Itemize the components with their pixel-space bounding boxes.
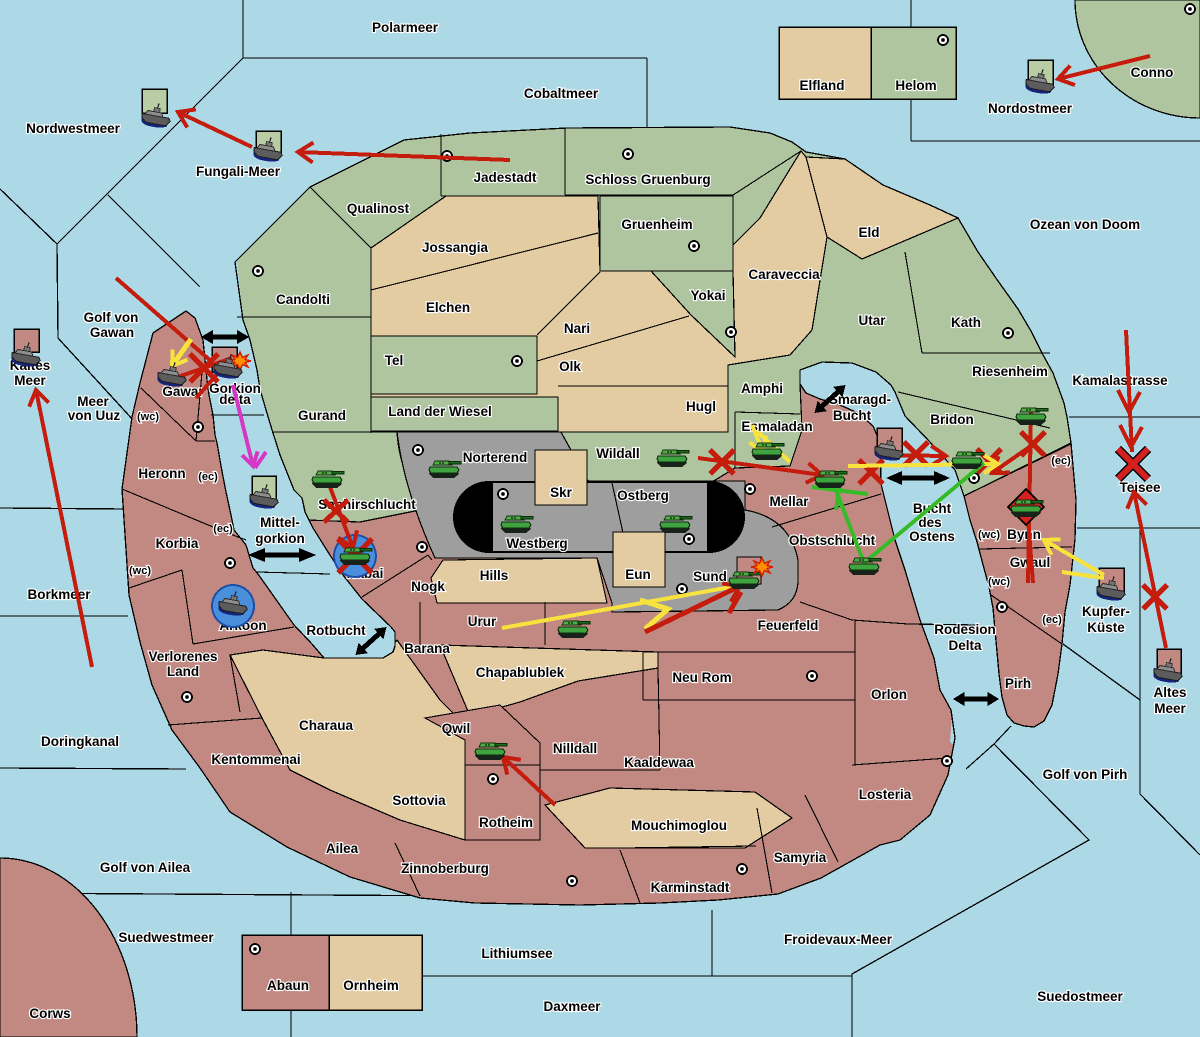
svg-text:Fungali-Meer: Fungali-Meer bbox=[196, 164, 281, 179]
svg-text:Ostens: Ostens bbox=[909, 529, 955, 544]
svg-text:Nari: Nari bbox=[564, 321, 590, 336]
svg-text:Chapablublek: Chapablublek bbox=[476, 665, 565, 680]
svg-text:Bynn: Bynn bbox=[1007, 527, 1041, 542]
svg-text:Qualinost: Qualinost bbox=[347, 201, 410, 216]
svg-text:Caraveccia: Caraveccia bbox=[748, 267, 820, 282]
svg-text:Lithiumsee: Lithiumsee bbox=[481, 946, 553, 961]
svg-text:Teisee: Teisee bbox=[1119, 480, 1161, 495]
svg-text:Meer: Meer bbox=[14, 373, 46, 388]
svg-text:Cobaltmeer: Cobaltmeer bbox=[524, 86, 599, 101]
svg-text:(wc): (wc) bbox=[988, 576, 1010, 588]
svg-text:Pirh: Pirh bbox=[1005, 676, 1031, 691]
svg-text:Kentommenai: Kentommenai bbox=[211, 752, 300, 767]
svg-text:Norterend: Norterend bbox=[463, 450, 528, 465]
svg-text:Losteria: Losteria bbox=[859, 787, 912, 802]
svg-text:Bridon: Bridon bbox=[930, 412, 974, 427]
svg-text:Gruenheim: Gruenheim bbox=[621, 217, 692, 232]
svg-text:Jossangia: Jossangia bbox=[422, 240, 489, 255]
svg-text:Charaua: Charaua bbox=[299, 718, 354, 733]
svg-text:Kath: Kath bbox=[951, 315, 981, 330]
svg-text:Amphi: Amphi bbox=[741, 381, 783, 396]
svg-text:Bucht: Bucht bbox=[833, 408, 872, 423]
svg-text:Utar: Utar bbox=[858, 313, 886, 328]
svg-text:Hugl: Hugl bbox=[686, 399, 716, 414]
svg-text:Ostberg: Ostberg bbox=[617, 488, 669, 503]
svg-text:Feuerfeld: Feuerfeld bbox=[758, 618, 819, 633]
svg-text:Sund: Sund bbox=[693, 569, 727, 584]
svg-text:Golf von Ailea: Golf von Ailea bbox=[100, 860, 191, 875]
svg-text:Riesenheim: Riesenheim bbox=[972, 364, 1048, 379]
svg-text:Heronn: Heronn bbox=[138, 466, 185, 481]
svg-text:Golf von Pirh: Golf von Pirh bbox=[1043, 767, 1128, 782]
svg-text:von Uuz: von Uuz bbox=[68, 408, 121, 423]
svg-text:Karminstadt: Karminstadt bbox=[651, 880, 730, 895]
svg-text:Verlorenes: Verlorenes bbox=[148, 649, 217, 664]
svg-text:Rotheim: Rotheim bbox=[479, 815, 533, 830]
svg-text:Ozean von Doom: Ozean von Doom bbox=[1030, 217, 1140, 232]
svg-text:Küste: Küste bbox=[1087, 620, 1125, 635]
svg-text:Delta: Delta bbox=[948, 638, 982, 653]
svg-text:Corws: Corws bbox=[29, 1006, 70, 1021]
svg-text:(wc): (wc) bbox=[978, 529, 1000, 541]
svg-text:Tel: Tel bbox=[385, 353, 404, 368]
svg-text:Abaun: Abaun bbox=[267, 978, 309, 993]
svg-text:Meer: Meer bbox=[1154, 701, 1186, 716]
svg-text:Nogk: Nogk bbox=[411, 579, 445, 594]
svg-text:Helom: Helom bbox=[895, 78, 936, 93]
svg-text:(wc): (wc) bbox=[137, 411, 159, 423]
svg-text:Korbia: Korbia bbox=[156, 536, 199, 551]
svg-text:Land: Land bbox=[167, 664, 199, 679]
svg-text:Gurand: Gurand bbox=[298, 408, 346, 423]
svg-text:Samyria: Samyria bbox=[774, 850, 827, 865]
svg-text:(wc): (wc) bbox=[129, 565, 151, 577]
svg-text:Mellar: Mellar bbox=[769, 494, 809, 509]
svg-text:Golf von: Golf von bbox=[84, 310, 139, 325]
svg-text:Land der Wiesel: Land der Wiesel bbox=[388, 404, 491, 419]
svg-text:Yokai: Yokai bbox=[690, 288, 725, 303]
svg-text:Altes: Altes bbox=[1153, 685, 1186, 700]
svg-text:Eld: Eld bbox=[858, 225, 879, 240]
svg-text:(ec): (ec) bbox=[198, 471, 218, 483]
svg-text:Froidevaux-Meer: Froidevaux-Meer bbox=[784, 932, 893, 947]
svg-text:Nordostmeer: Nordostmeer bbox=[988, 101, 1073, 116]
svg-text:Rodesion: Rodesion bbox=[934, 622, 996, 637]
svg-text:Nilldall: Nilldall bbox=[553, 741, 597, 756]
svg-text:Ornheim: Ornheim bbox=[343, 978, 399, 993]
svg-text:Kamalastrasse: Kamalastrasse bbox=[1072, 373, 1168, 388]
svg-text:Nordwestmeer: Nordwestmeer bbox=[26, 121, 121, 136]
svg-text:gorkion: gorkion bbox=[255, 531, 305, 546]
svg-text:Qwil: Qwil bbox=[442, 721, 471, 736]
svg-text:Elfland: Elfland bbox=[799, 78, 844, 93]
svg-text:Polarmeer: Polarmeer bbox=[372, 20, 439, 35]
svg-text:(ec): (ec) bbox=[1042, 614, 1062, 626]
svg-text:Sottovia: Sottovia bbox=[392, 793, 446, 808]
svg-text:Mouchimoglou: Mouchimoglou bbox=[631, 818, 727, 833]
svg-text:Obstschlucht: Obstschlucht bbox=[789, 533, 876, 548]
svg-text:Ailea: Ailea bbox=[326, 841, 359, 856]
svg-text:Westberg: Westberg bbox=[506, 536, 567, 551]
svg-text:Orlon: Orlon bbox=[871, 687, 907, 702]
svg-text:Doringkanal: Doringkanal bbox=[41, 734, 119, 749]
svg-text:Kaaldewaa: Kaaldewaa bbox=[624, 755, 694, 770]
svg-text:Barana: Barana bbox=[404, 641, 450, 656]
svg-text:Jadestadt: Jadestadt bbox=[473, 170, 537, 185]
svg-text:Conno: Conno bbox=[1131, 65, 1174, 80]
svg-text:(ec): (ec) bbox=[213, 523, 233, 535]
svg-text:Suedostmeer: Suedostmeer bbox=[1037, 989, 1123, 1004]
svg-text:Gawan: Gawan bbox=[90, 325, 134, 340]
svg-text:Daxmeer: Daxmeer bbox=[543, 999, 601, 1014]
svg-text:Suedwestmeer: Suedwestmeer bbox=[118, 930, 214, 945]
svg-text:Elchen: Elchen bbox=[426, 300, 470, 315]
svg-text:Candolti: Candolti bbox=[276, 292, 330, 307]
svg-text:Neu Rom: Neu Rom bbox=[672, 670, 731, 685]
svg-text:Wildall: Wildall bbox=[596, 446, 639, 461]
svg-text:Olk: Olk bbox=[559, 359, 581, 374]
svg-text:Schloss Gruenburg: Schloss Gruenburg bbox=[585, 172, 710, 187]
svg-text:(ec): (ec) bbox=[1051, 455, 1071, 467]
svg-text:Borkmeer: Borkmeer bbox=[27, 587, 91, 602]
svg-text:Meer: Meer bbox=[77, 394, 109, 409]
svg-text:Mittel-: Mittel- bbox=[260, 515, 300, 530]
svg-text:Hills: Hills bbox=[480, 568, 509, 583]
svg-text:Skr: Skr bbox=[550, 485, 573, 500]
svg-text:Kupfer-: Kupfer- bbox=[1082, 604, 1130, 619]
svg-text:Urur: Urur bbox=[468, 614, 497, 629]
svg-text:Rotbucht: Rotbucht bbox=[306, 623, 366, 638]
svg-text:Zinnoberburg: Zinnoberburg bbox=[401, 861, 489, 876]
svg-text:Eun: Eun bbox=[625, 567, 651, 582]
